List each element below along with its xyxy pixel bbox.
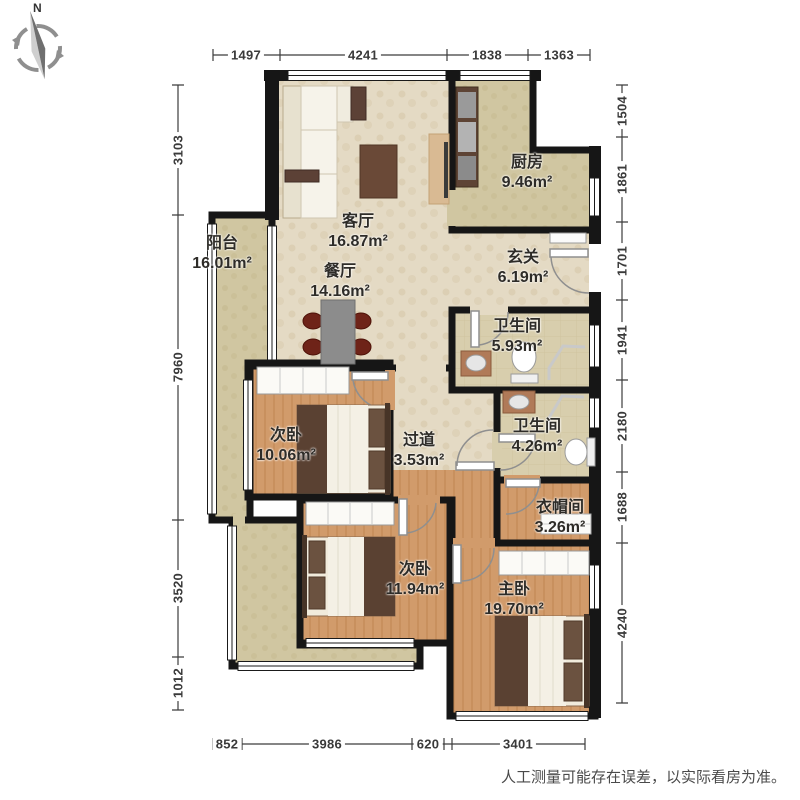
dim-left-1: 3103 bbox=[171, 132, 186, 168]
room-label-bedroom-1: 次卧 10.06m² bbox=[256, 426, 316, 466]
room-name: 过道 bbox=[394, 431, 445, 451]
room-area: 3.26m² bbox=[535, 518, 586, 538]
room-label-master-bedroom: 主卧 19.70m² bbox=[484, 580, 544, 620]
dim-top-2: 4241 bbox=[345, 48, 381, 63]
room-label-corridor: 过道 3.53m² bbox=[394, 431, 445, 471]
room-name: 次卧 bbox=[256, 426, 316, 446]
room-name: 主卧 bbox=[484, 580, 544, 600]
dim-right-7: 4240 bbox=[615, 605, 630, 641]
dim-right-3: 1701 bbox=[615, 243, 630, 279]
wardrobe-1 bbox=[257, 367, 349, 394]
dim-right-4: 1941 bbox=[615, 322, 630, 358]
room-area: 19.70m² bbox=[484, 600, 544, 620]
dim-top-1: 1497 bbox=[228, 48, 264, 63]
dim-left-4: 1012 bbox=[171, 665, 186, 701]
dim-bottom-3: 620 bbox=[414, 737, 443, 752]
room-label-living: 客厅 16.87m² bbox=[328, 212, 388, 252]
room-area: 16.01m² bbox=[192, 254, 252, 274]
room-area: 4.26m² bbox=[512, 437, 563, 457]
sink-2 bbox=[503, 391, 535, 413]
room-area: 5.93m² bbox=[492, 337, 543, 357]
master-dresser bbox=[499, 551, 589, 575]
dim-top-3: 1838 bbox=[469, 48, 505, 63]
room-label-bathroom-1: 卫生间 5.93m² bbox=[492, 317, 543, 357]
room-label-cloakroom: 衣帽间 3.26m² bbox=[535, 498, 586, 538]
dim-bottom-2: 3986 bbox=[309, 737, 345, 752]
shoe-cabinet bbox=[550, 233, 586, 243]
dim-left-3: 3520 bbox=[171, 570, 186, 606]
toilet-2 bbox=[565, 438, 595, 466]
room-name: 阳台 bbox=[192, 234, 252, 254]
dim-right-5: 2180 bbox=[615, 408, 630, 444]
room-label-bathroom-2: 卫生间 4.26m² bbox=[512, 417, 563, 457]
kitchen-counter bbox=[456, 87, 478, 187]
room-name: 玄关 bbox=[498, 248, 549, 268]
measurement-disclaimer: 人工测量可能存在误差，以实际看房为准。 bbox=[501, 766, 786, 787]
room-area: 16.87m² bbox=[328, 232, 388, 252]
dim-left-2: 7960 bbox=[171, 349, 186, 385]
dim-top-4: 1363 bbox=[541, 48, 577, 63]
tv-cabinet bbox=[429, 134, 449, 204]
room-label-kitchen: 厨房 9.46m² bbox=[502, 153, 553, 193]
room-name: 客厅 bbox=[328, 212, 388, 232]
room-name: 次卧 bbox=[386, 560, 445, 580]
dim-bottom-4: 3401 bbox=[500, 737, 536, 752]
room-area: 11.94m² bbox=[386, 580, 445, 600]
room-name: 衣帽间 bbox=[535, 498, 586, 518]
floorplan-canvas bbox=[0, 0, 800, 800]
dim-right-1: 1504 bbox=[615, 93, 630, 129]
bed-2 bbox=[302, 535, 395, 618]
master-bed bbox=[495, 614, 589, 708]
room-area: 10.06m² bbox=[256, 446, 316, 466]
compass-icon bbox=[12, 9, 64, 80]
room-label-balcony: 阳台 16.01m² bbox=[192, 234, 252, 274]
room-area: 3.53m² bbox=[394, 451, 445, 471]
room-label-bedroom-2: 次卧 11.94m² bbox=[386, 560, 445, 600]
sink-1 bbox=[461, 351, 491, 376]
room-label-dining: 餐厅 14.16m² bbox=[310, 262, 370, 302]
compass-north-label: N bbox=[33, 1, 42, 15]
room-label-entry-hall: 玄关 6.19m² bbox=[498, 248, 549, 288]
room-area: 14.16m² bbox=[310, 282, 370, 302]
wardrobe-2 bbox=[306, 502, 394, 525]
dim-right-6: 1688 bbox=[615, 489, 630, 525]
room-name: 厨房 bbox=[502, 153, 553, 173]
room-name: 餐厅 bbox=[310, 262, 370, 282]
room-area: 9.46m² bbox=[502, 173, 553, 193]
dim-bottom-1: 852 bbox=[213, 737, 242, 752]
room-area: 6.19m² bbox=[498, 268, 549, 288]
room-name: 卫生间 bbox=[492, 317, 543, 337]
coffee-table bbox=[360, 145, 397, 198]
floorplan-page: N 客厅 16.87m² 餐厅 14.16m² 厨房 9.46m² 玄关 6.1… bbox=[0, 0, 800, 800]
room-name: 卫生间 bbox=[512, 417, 563, 437]
dim-right-2: 1861 bbox=[615, 161, 630, 197]
